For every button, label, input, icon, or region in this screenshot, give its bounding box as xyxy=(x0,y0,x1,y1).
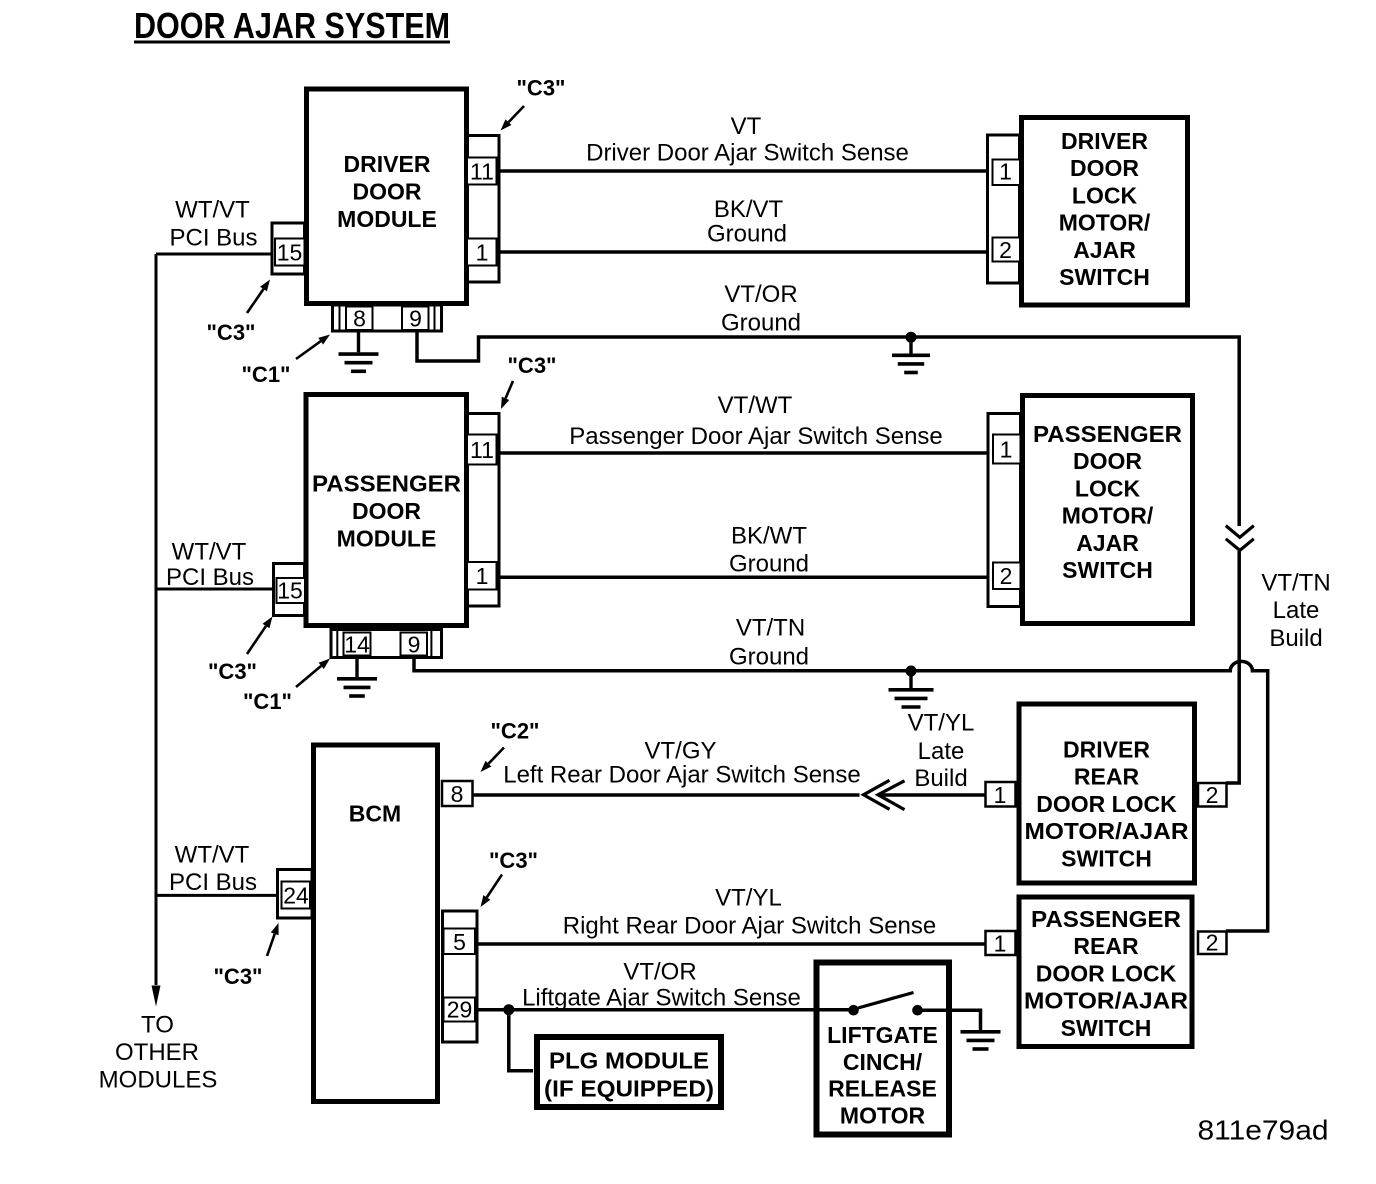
svg-text:1: 1 xyxy=(994,931,1007,957)
svg-text:VT: VT xyxy=(731,113,762,140)
svg-text:"C3": "C3" xyxy=(489,848,538,873)
svg-text:DOOR: DOOR xyxy=(1070,155,1139,181)
svg-text:DRIVER: DRIVER xyxy=(1061,128,1148,154)
svg-text:"C3": "C3" xyxy=(208,659,257,684)
svg-text:LOCK: LOCK xyxy=(1072,182,1138,208)
svg-text:Right Rear Door Ajar Switch Se: Right Rear Door Ajar Switch Sense xyxy=(563,913,937,940)
svg-text:PASSENGER: PASSENGER xyxy=(312,471,461,497)
svg-text:5: 5 xyxy=(453,929,466,955)
svg-text:Liftgate Ajar Switch Sense: Liftgate Ajar Switch Sense xyxy=(522,985,801,1012)
svg-text:Left Rear Door Ajar Switch Sen: Left Rear Door Ajar Switch Sense xyxy=(503,762,861,789)
svg-text:9: 9 xyxy=(409,305,422,331)
svg-text:14: 14 xyxy=(344,631,370,657)
svg-text:MODULE: MODULE xyxy=(337,206,437,232)
svg-text:1: 1 xyxy=(999,158,1012,184)
svg-text:MOTOR: MOTOR xyxy=(840,1102,926,1128)
svg-text:1: 1 xyxy=(1000,436,1013,462)
svg-text:MOTOR/AJAR: MOTOR/AJAR xyxy=(1024,988,1188,1014)
svg-text:TO: TO xyxy=(141,1012,174,1039)
svg-text:AJAR: AJAR xyxy=(1076,530,1139,556)
svg-text:MODULES: MODULES xyxy=(99,1067,218,1094)
svg-text:9: 9 xyxy=(408,631,421,657)
svg-text:1: 1 xyxy=(994,782,1007,808)
svg-text:(IF EQUIPPED): (IF EQUIPPED) xyxy=(544,1076,714,1102)
svg-text:"C3": "C3" xyxy=(214,964,263,989)
svg-text:VT/OR: VT/OR xyxy=(724,281,797,308)
svg-text:Late: Late xyxy=(1273,597,1320,624)
svg-text:REAR: REAR xyxy=(1074,764,1140,790)
svg-text:"C2": "C2" xyxy=(491,719,540,744)
svg-text:2: 2 xyxy=(1206,930,1219,956)
svg-text:11: 11 xyxy=(470,437,494,463)
svg-text:8: 8 xyxy=(353,305,366,331)
svg-text:SWITCH: SWITCH xyxy=(1061,1015,1152,1041)
svg-text:LOCK: LOCK xyxy=(1075,475,1141,501)
svg-text:1: 1 xyxy=(476,563,489,589)
svg-text:Ground: Ground xyxy=(729,644,809,671)
svg-text:"C3": "C3" xyxy=(508,353,557,378)
svg-text:15: 15 xyxy=(277,239,303,265)
svg-text:Ground: Ground xyxy=(707,221,787,248)
svg-text:WT/VT: WT/VT xyxy=(175,842,250,869)
svg-text:DOOR: DOOR xyxy=(1073,448,1142,474)
svg-text:VT/TN: VT/TN xyxy=(736,615,805,642)
svg-text:BK/WT: BK/WT xyxy=(731,523,807,550)
svg-text:DRIVER: DRIVER xyxy=(344,151,431,177)
svg-text:MOTOR/: MOTOR/ xyxy=(1062,503,1154,529)
svg-text:VT/YL: VT/YL xyxy=(715,885,782,912)
svg-text:2: 2 xyxy=(1206,782,1219,808)
svg-text:"C3": "C3" xyxy=(517,76,566,101)
svg-text:PCI Bus: PCI Bus xyxy=(169,225,257,252)
svg-text:PCI Bus: PCI Bus xyxy=(166,564,254,591)
svg-text:MODULE: MODULE xyxy=(337,526,437,552)
svg-text:11: 11 xyxy=(470,158,494,184)
svg-text:811e79ad: 811e79ad xyxy=(1198,1115,1329,1146)
svg-text:WT/VT: WT/VT xyxy=(175,197,250,224)
svg-text:CINCH/: CINCH/ xyxy=(843,1049,923,1075)
svg-text:Driver Door Ajar Switch Sense: Driver Door Ajar Switch Sense xyxy=(586,140,909,167)
svg-text:DRIVER: DRIVER xyxy=(1063,737,1150,763)
svg-text:2: 2 xyxy=(1000,563,1013,589)
svg-text:DOOR LOCK: DOOR LOCK xyxy=(1036,791,1177,817)
svg-text:SWITCH: SWITCH xyxy=(1062,557,1153,583)
svg-text:Passenger Door Ajar Switch Sen: Passenger Door Ajar Switch Sense xyxy=(569,423,943,450)
svg-text:LIFTGATE: LIFTGATE xyxy=(827,1022,938,1048)
svg-text:MOTOR/: MOTOR/ xyxy=(1059,210,1151,236)
svg-text:PASSENGER: PASSENGER xyxy=(1033,421,1182,447)
svg-text:VT/YL: VT/YL xyxy=(908,710,975,737)
svg-text:DOOR AJAR SYSTEM: DOOR AJAR SYSTEM xyxy=(134,5,450,46)
svg-text:"C1": "C1" xyxy=(242,362,291,387)
svg-text:Ground: Ground xyxy=(721,310,801,337)
svg-text:Build: Build xyxy=(914,765,967,792)
svg-text:VT/WT: VT/WT xyxy=(718,392,793,419)
svg-text:24: 24 xyxy=(283,883,309,909)
svg-text:BCM: BCM xyxy=(349,801,401,827)
svg-text:1: 1 xyxy=(476,239,489,265)
svg-text:BK/VT: BK/VT xyxy=(714,196,784,223)
svg-text:8: 8 xyxy=(451,781,464,807)
svg-text:"C1": "C1" xyxy=(243,689,292,714)
svg-text:AJAR: AJAR xyxy=(1073,237,1136,263)
svg-text:DOOR LOCK: DOOR LOCK xyxy=(1036,960,1177,986)
svg-text:VT/TN: VT/TN xyxy=(1261,570,1330,597)
svg-text:REAR: REAR xyxy=(1073,933,1139,959)
svg-text:"C3": "C3" xyxy=(207,320,256,345)
svg-text:SWITCH: SWITCH xyxy=(1059,264,1150,290)
svg-text:PLG MODULE: PLG MODULE xyxy=(549,1048,709,1074)
svg-text:SWITCH: SWITCH xyxy=(1061,845,1152,871)
svg-text:Late: Late xyxy=(918,738,965,765)
svg-text:2: 2 xyxy=(999,237,1012,263)
svg-text:OTHER: OTHER xyxy=(115,1039,199,1066)
svg-text:RELEASE: RELEASE xyxy=(828,1076,937,1102)
svg-text:DOOR: DOOR xyxy=(353,179,422,205)
svg-text:VT/OR: VT/OR xyxy=(623,959,696,986)
svg-text:PCI Bus: PCI Bus xyxy=(169,869,257,896)
svg-text:WT/VT: WT/VT xyxy=(172,539,247,566)
svg-text:MOTOR/AJAR: MOTOR/AJAR xyxy=(1025,818,1189,844)
svg-text:DOOR: DOOR xyxy=(352,498,421,524)
svg-text:29: 29 xyxy=(447,997,473,1023)
svg-text:VT/GY: VT/GY xyxy=(644,738,716,765)
svg-text:PASSENGER: PASSENGER xyxy=(1031,906,1181,932)
svg-text:15: 15 xyxy=(277,578,303,604)
svg-text:Build: Build xyxy=(1269,625,1322,652)
svg-text:Ground: Ground xyxy=(729,551,809,578)
